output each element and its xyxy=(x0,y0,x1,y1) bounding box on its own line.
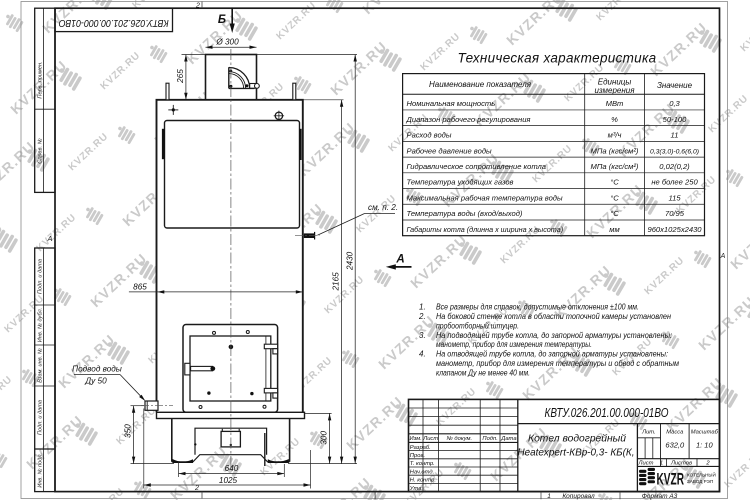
svg-text:Н. контр.: Н. контр. xyxy=(410,478,436,484)
svg-text:Ø 300: Ø 300 xyxy=(215,37,239,46)
svg-text:4.: 4. xyxy=(419,350,426,359)
svg-text:Все размеры для справок, допус: Все размеры для справок, допустимые откл… xyxy=(436,303,639,312)
svg-text:МПа (кгс/см²): МПа (кгс/см²) xyxy=(591,146,639,155)
svg-text:%: % xyxy=(611,115,618,124)
svg-text:Формат А3: Формат А3 xyxy=(642,493,678,500)
svg-text:960х1025х2430: 960х1025х2430 xyxy=(647,225,702,234)
svg-text:Подвод воды: Подвод воды xyxy=(72,365,122,374)
svg-text:Температура уходящих газов: Температура уходящих газов xyxy=(407,178,514,187)
svg-text:Масса: Масса xyxy=(666,430,684,436)
svg-text:115: 115 xyxy=(668,194,681,203)
svg-text:Подп. и дата: Подп. и дата xyxy=(37,400,43,435)
svg-text:Лит.: Лит. xyxy=(641,430,656,436)
svg-text:Значение: Значение xyxy=(657,81,693,90)
svg-text:На боковой стенке котла в обла: На боковой стенке котла в области топочн… xyxy=(436,312,672,321)
svg-text:Наименование показателя: Наименование показателя xyxy=(429,80,532,89)
svg-text:0,3: 0,3 xyxy=(669,99,680,108)
svg-text:Утв.: Утв. xyxy=(409,486,423,492)
svg-text:2430: 2430 xyxy=(345,251,354,271)
svg-text:измерения: измерения xyxy=(594,86,635,95)
svg-text:Подп. и дата: Подп. и дата xyxy=(37,259,43,294)
svg-text:КВТУ.026.201.00.000-01ВО: КВТУ.026.201.00.000-01ВО xyxy=(59,17,169,28)
svg-text:Максимальная рабочая температу: Максимальная рабочая температура воды xyxy=(407,194,564,203)
svg-text:50-100: 50-100 xyxy=(663,115,687,124)
svg-text:А: А xyxy=(47,236,53,243)
svg-text:865: 865 xyxy=(133,282,147,291)
svg-text:0,02(0,2): 0,02(0,2) xyxy=(659,162,690,171)
svg-text:2: 2 xyxy=(194,485,199,492)
svg-text:300: 300 xyxy=(320,431,329,445)
svg-text:Heatexpert-КВр-0,3- КБ(К,: Heatexpert-КВр-0,3- КБ(К, xyxy=(518,447,635,459)
svg-text:КОТЕЛЬНЫЙ: КОТЕЛЬНЫЙ xyxy=(687,471,716,478)
svg-text:1: 1 xyxy=(547,493,551,500)
svg-text:°С: °С xyxy=(610,209,619,218)
svg-text:№ докум.: № докум. xyxy=(447,436,473,442)
svg-text:МВт: МВт xyxy=(606,99,624,108)
svg-text:350: 350 xyxy=(124,424,133,438)
svg-text:2.: 2. xyxy=(418,312,426,321)
svg-text:МПа (кгс/см²): МПа (кгс/см²) xyxy=(591,162,639,171)
svg-text:На отводящей трубе котла, до з: На отводящей трубе котла, до запорной ар… xyxy=(436,350,668,359)
svg-text:мм: мм xyxy=(609,225,620,234)
svg-text:Гидравлическое сопротивление к: Гидравлическое сопротивление котла xyxy=(407,162,547,171)
svg-text:Листов: Листов xyxy=(670,460,692,466)
svg-text:Ду 50: Ду 50 xyxy=(84,377,107,386)
svg-text:Диапазон рабочего регулировани: Диапазон рабочего регулирования xyxy=(406,115,531,124)
svg-text:Разраб.: Разраб. xyxy=(410,445,431,451)
svg-text:Номинальная мощность: Номинальная мощность xyxy=(407,99,496,108)
svg-text:70/95: 70/95 xyxy=(665,209,685,218)
svg-text:Дата: Дата xyxy=(500,436,517,442)
svg-text:клапаном Ду не менее 40 мм.: клапаном Ду не менее 40 мм. xyxy=(436,368,530,377)
svg-text:А: А xyxy=(720,253,726,260)
svg-text:Пров.: Пров. xyxy=(410,453,425,459)
svg-text:2: 2 xyxy=(195,3,200,10)
svg-text:0,3(3,0)-0,6(6,0): 0,3(3,0)-0,6(6,0) xyxy=(650,148,699,155)
svg-text:632,0: 632,0 xyxy=(665,441,685,450)
svg-text:3.: 3. xyxy=(419,331,426,340)
svg-text:Перв. примен.: Перв. примен. xyxy=(37,61,43,98)
svg-text:Лист: Лист xyxy=(638,460,654,466)
svg-text:Температура воды (вход/выход): Температура воды (вход/выход) xyxy=(407,209,523,218)
svg-text:Инв. № дубл.: Инв. № дубл. xyxy=(37,308,43,342)
svg-text:Инв. № подл.: Инв. № подл. xyxy=(37,453,43,488)
svg-text:На подводящей трубе котла, до: На подводящей трубе котла, до запорной а… xyxy=(436,331,672,340)
svg-text:не более 250: не более 250 xyxy=(651,178,698,187)
svg-text:Копировал: Копировал xyxy=(562,493,595,500)
svg-text:1: 10: 1: 10 xyxy=(696,441,714,450)
svg-text:1.: 1. xyxy=(419,303,426,312)
svg-text:Взам. инв. №: Взам. инв. № xyxy=(37,348,43,383)
svg-text:Техническая характеристика: Техническая характеристика xyxy=(458,51,657,66)
svg-text:11: 11 xyxy=(671,131,679,140)
svg-text:265: 265 xyxy=(176,69,185,84)
svg-text:Масштаб: Масштаб xyxy=(691,430,719,436)
svg-text:640: 640 xyxy=(225,464,239,473)
svg-text:Подп.: Подп. xyxy=(482,436,497,442)
svg-text:Изм.: Изм. xyxy=(410,436,422,442)
svg-text:°С: °С xyxy=(610,178,619,187)
svg-text:Т. контр.: Т. контр. xyxy=(410,461,435,467)
svg-text:Котел водогрейный: Котел водогрейный xyxy=(528,433,626,445)
svg-text:1025: 1025 xyxy=(219,476,238,485)
svg-text:Рабочее давление воды: Рабочее давление воды xyxy=(407,146,493,155)
svg-text:Б: Б xyxy=(218,14,226,26)
svg-text:см. п. 2.: см. п. 2. xyxy=(368,203,398,212)
svg-text:манометр, прибор для измерения: манометр, прибор для измерения температу… xyxy=(436,359,679,368)
svg-text:Расход воды: Расход воды xyxy=(407,131,452,140)
svg-text:пробоотборный штуцер.: пробоотборный штуцер. xyxy=(436,321,519,330)
svg-text:ЗАВОД РЭП: ЗАВОД РЭП xyxy=(687,479,713,484)
svg-text:Нач.отд.: Нач.отд. xyxy=(410,469,434,475)
svg-text:м³/ч: м³/ч xyxy=(608,131,622,140)
svg-text:2165: 2165 xyxy=(332,272,341,292)
svg-text:А: А xyxy=(395,254,404,266)
svg-text:Лист: Лист xyxy=(422,436,438,442)
svg-text:Справ. №: Справ. № xyxy=(37,138,43,163)
svg-text:°С: °С xyxy=(610,194,619,203)
svg-text:1: 1 xyxy=(660,460,663,466)
svg-text:Габариты котла (длинна х ширин: Габариты котла (длинна х ширина х высота… xyxy=(407,225,564,234)
svg-text:КВТУ.026.201.00.000-01ВО: КВТУ.026.201.00.000-01ВО xyxy=(545,405,669,420)
svg-text:манометр, прибор для измерения: манометр, прибор для измерения температу… xyxy=(436,340,592,349)
svg-text:KVZR: KVZR xyxy=(657,470,685,489)
